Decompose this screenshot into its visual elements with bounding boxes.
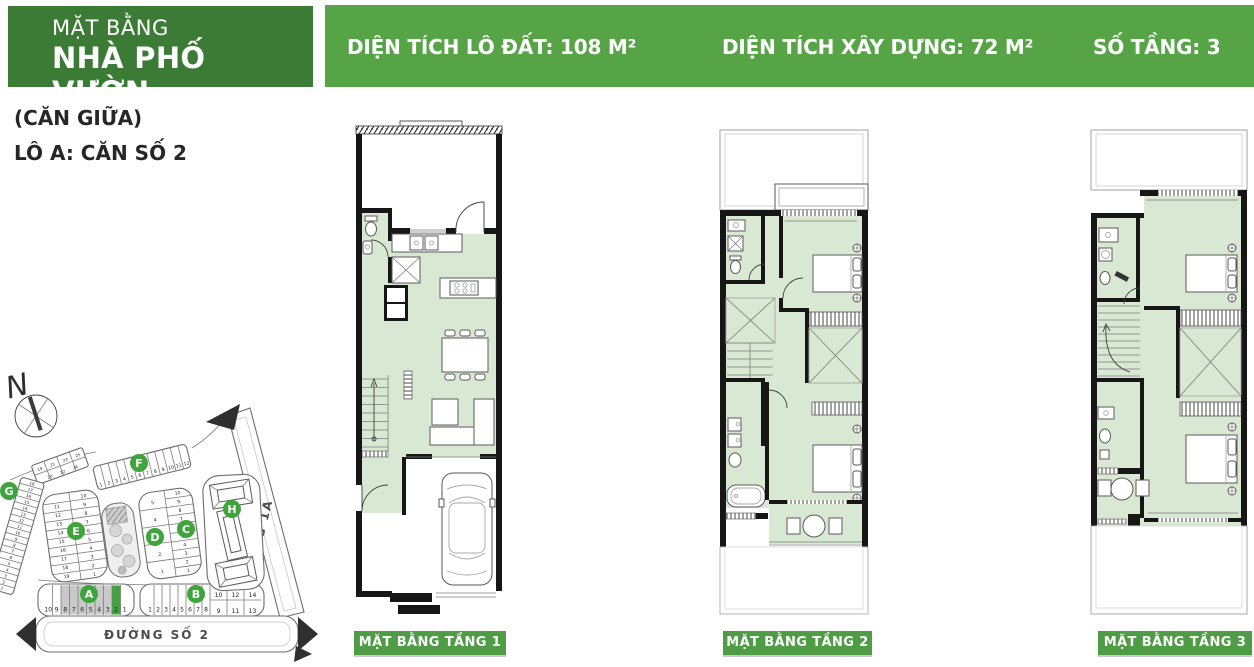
street-1a-arrow-icon [206,404,240,430]
svg-text:C: C [182,523,190,536]
floor-1-caption: MẶT BẰNG TẦNG 1 [354,631,506,655]
wardrobe-icon [1180,310,1241,326]
badge-D: D [146,528,164,546]
svg-text:7: 7 [72,607,76,614]
balcony-table-icon [803,515,825,537]
svg-text:H: H [227,503,236,516]
svg-text:13: 13 [249,608,257,615]
toilet-icon [729,453,741,467]
badge-G: G [0,482,18,500]
svg-text:10: 10 [215,592,223,599]
svg-text:10: 10 [80,493,87,500]
porch-step [390,593,432,602]
svg-text:4: 4 [97,607,101,614]
toilet-icon [1100,429,1111,443]
site-plan-map: N ĐƯỜNG 1A ĐƯỜNG SỐ 2 [0,358,320,667]
badge-A: A [80,585,98,603]
compass-north-label: N [2,367,32,406]
stat-floor-count: SỐ TẦNG: 3 [1093,35,1221,59]
svg-text:4: 4 [172,607,176,614]
title-banner: MẶT BẰNG NHÀ PHỐ VƯỜN [8,6,313,87]
svg-text:2: 2 [114,607,118,614]
front-terrace [1091,526,1247,614]
svg-text:15: 15 [58,539,65,546]
kitchen-door-arc [456,202,484,232]
badge-C: C [177,520,195,538]
svg-text:A: A [85,588,94,601]
badge-F: F [130,454,148,472]
toilet-icon [1100,272,1110,285]
svg-text:2: 2 [156,607,160,614]
sink-icon [1099,228,1118,242]
wardrobe-icon [809,312,862,326]
kitchen-sink-icon [410,236,423,250]
floor-3-plan [1088,128,1250,617]
title-line2: NHÀ PHỐ VƯỜN [52,41,313,109]
badge-B: B [187,585,205,603]
floor-2-caption: MẶT BẰNG TẦNG 2 [723,631,872,655]
floor-1-plan [352,121,506,617]
street-duong-so-2: ĐƯỜNG SỐ 2 [16,616,318,652]
svg-text:3: 3 [106,607,110,614]
svg-text:16: 16 [60,547,67,554]
svg-text:8: 8 [204,607,208,614]
kitchen-cabinet [384,285,408,321]
floor-2-plan [717,128,872,617]
front-area [720,547,868,614]
badge-H: H [223,500,241,518]
unit-label: LÔ A: CĂN SỐ 2 [14,141,187,165]
svg-text:11: 11 [54,504,61,511]
svg-text:11: 11 [232,608,240,615]
svg-text:7: 7 [196,607,200,614]
sink-icon [728,220,745,231]
street-2-right-arrow-icon [298,617,318,651]
street-2-label: ĐƯỜNG SỐ 2 [104,625,210,642]
wardrobe-icon [812,402,862,415]
svg-text:17: 17 [61,556,68,563]
svg-text:9: 9 [217,608,221,615]
toilet-icon [731,261,741,274]
svg-text:3: 3 [164,607,168,614]
street-2-left-arrow-icon [16,617,36,651]
block-H [202,474,265,592]
shower-box [392,257,420,283]
svg-text:9: 9 [55,607,59,614]
sink-icon [1098,407,1114,419]
compass: N [2,367,65,445]
wardrobe-icon [1180,402,1241,416]
table-icon [1111,478,1133,500]
floor-3-caption: MẶT BẰNG TẦNG 3 [1098,631,1252,655]
svg-text:14: 14 [57,530,64,537]
svg-text:18: 18 [62,565,69,572]
svg-text:6: 6 [80,607,84,614]
block-b-back-upper-lot-numbers: 101214 [215,592,257,599]
stat-built-area: DIỆN TÍCH XÂY DỰNG: 72 M² [722,35,1033,59]
tv-shelf-icon [404,371,412,399]
svg-text:12: 12 [232,592,240,599]
svg-text:13: 13 [56,521,63,528]
svg-text:10: 10 [174,490,181,497]
svg-text:E: E [72,525,80,538]
stat-lot-area: DIỆN TÍCH LÔ ĐẤT: 108 M² [347,35,636,59]
stats-strip: DIỆN TÍCH LÔ ĐẤT: 108 M² DIỆN TÍCH XÂY D… [325,5,1254,87]
balcony [769,504,862,545]
svg-text:B: B [192,588,200,601]
svg-text:5: 5 [89,607,93,614]
svg-text:10: 10 [44,607,52,614]
svg-text:5: 5 [180,607,184,614]
corner-lot-rows: 19212325 202224 [31,447,89,484]
svg-text:12: 12 [55,513,62,520]
svg-text:1: 1 [123,607,127,614]
toilet-icon [365,216,377,221]
svg-text:1: 1 [148,607,152,614]
svg-text:6: 6 [188,607,192,614]
svg-text:G: G [4,485,13,498]
sink-icon [363,241,372,254]
title-line1: MẶT BẰNG [52,16,313,40]
svg-text:14: 14 [249,592,257,599]
svg-text:19: 19 [63,574,70,581]
svg-text:D: D [150,531,159,544]
brochure-page: MẶT BẰNG NHÀ PHỐ VƯỜN DIỆN TÍCH LÔ ĐẤT: … [0,0,1254,667]
roof-terrace [1091,130,1247,190]
badge-E: E [67,522,85,540]
svg-text:8: 8 [63,607,67,614]
dining-table-icon [442,330,488,380]
sink-icon [728,418,741,431]
unit-note: (CĂN GIỮA) [14,106,142,130]
car-icon [439,473,495,585]
svg-text:F: F [135,457,143,470]
